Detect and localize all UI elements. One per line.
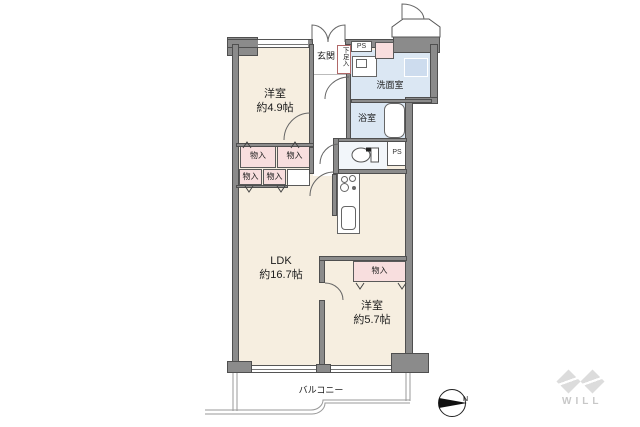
ps-label-toilet: PS (387, 149, 407, 158)
wall-under-storage (236, 185, 288, 188)
ldk-name: LDK (246, 255, 316, 269)
counter-box (287, 169, 310, 186)
kitchen-sink (341, 206, 356, 230)
balcony-fence-inner (205, 400, 410, 410)
room1-size: 約4.9帖 (240, 102, 310, 116)
room2-name: 洋室 (337, 300, 407, 314)
bathroom-label: 浴室 (352, 113, 382, 124)
logo-diamond-left (556, 369, 580, 393)
floorplan-canvas: 洋室 約4.9帖 LDK 約16.7帖 洋室 約5.7帖 玄関 下足入 洗面室 … (0, 0, 640, 427)
bathtub (384, 103, 405, 138)
ldk-label: LDK 約16.7帖 (246, 255, 316, 283)
wall-bath-toilet (337, 138, 407, 142)
balcony-fence-outer (205, 403, 410, 414)
storage-label-4: 物入 (263, 172, 286, 182)
washroom-label: 洗面室 (363, 80, 417, 91)
entrance-door-left (312, 25, 328, 42)
compass-north-label: N (463, 396, 468, 403)
wall-toilet-bottom (333, 169, 407, 174)
hall-floor-lower (313, 142, 333, 176)
stove-burner-1 (341, 176, 348, 183)
washer-pan (404, 58, 428, 77)
brand-text: WILL (562, 396, 602, 407)
window-bottom-right (331, 365, 391, 373)
mb-ps-label: MB PS (392, 23, 440, 32)
stove-burner-3 (340, 183, 349, 192)
pier-bottom-center (316, 364, 331, 373)
pillar-bottom-right (391, 353, 429, 373)
pillar-bottom-left (227, 361, 252, 373)
wall-ldk-room2-lower (319, 300, 325, 365)
storage-label-3: 物入 (239, 172, 262, 182)
balcony-fence-right (406, 373, 410, 401)
storage-label-room2: 物入 (353, 266, 406, 276)
wall-left (232, 44, 239, 373)
compass-circle (439, 390, 466, 417)
wall-room2-top (319, 256, 407, 261)
wall-toilet-left (333, 138, 339, 174)
wall-under-room1 (236, 143, 314, 147)
ldk-size: 約16.7帖 (246, 269, 316, 283)
storage-label-2: 物入 (277, 151, 312, 161)
window-top (258, 39, 308, 48)
brand-logo: WILL (556, 369, 616, 411)
ps-label-top: PS (351, 43, 372, 52)
genkan-label: 玄関 (313, 51, 339, 62)
toilet-floor (339, 141, 387, 169)
stove-burner-4 (352, 186, 356, 190)
utility-box (375, 42, 394, 59)
room1-name: 洋室 (240, 88, 310, 102)
wall-wash-bath (351, 99, 432, 103)
balcony-label: バルコニー (291, 385, 351, 396)
washbasin-bowl (356, 59, 367, 68)
genkan-step-line (314, 74, 347, 75)
wall-kitchen-stub (332, 174, 337, 216)
storage-label-1: 物入 (240, 151, 276, 161)
window-bottom-left (252, 365, 316, 373)
compass-arrow (439, 398, 467, 408)
meter-box-door-arc (402, 4, 424, 19)
room2-size: 約5.7帖 (337, 314, 407, 328)
shoe-box-label: 下足入 (340, 47, 348, 67)
logo-diamond-right (580, 369, 604, 393)
balcony-fence-left (233, 373, 237, 411)
wall-right-upper (430, 44, 438, 104)
room2-label: 洋室 約5.7帖 (337, 300, 407, 328)
room1-label: 洋室 約4.9帖 (240, 88, 310, 116)
stove-burner-2 (349, 175, 356, 182)
entrance-door-right (328, 25, 345, 42)
